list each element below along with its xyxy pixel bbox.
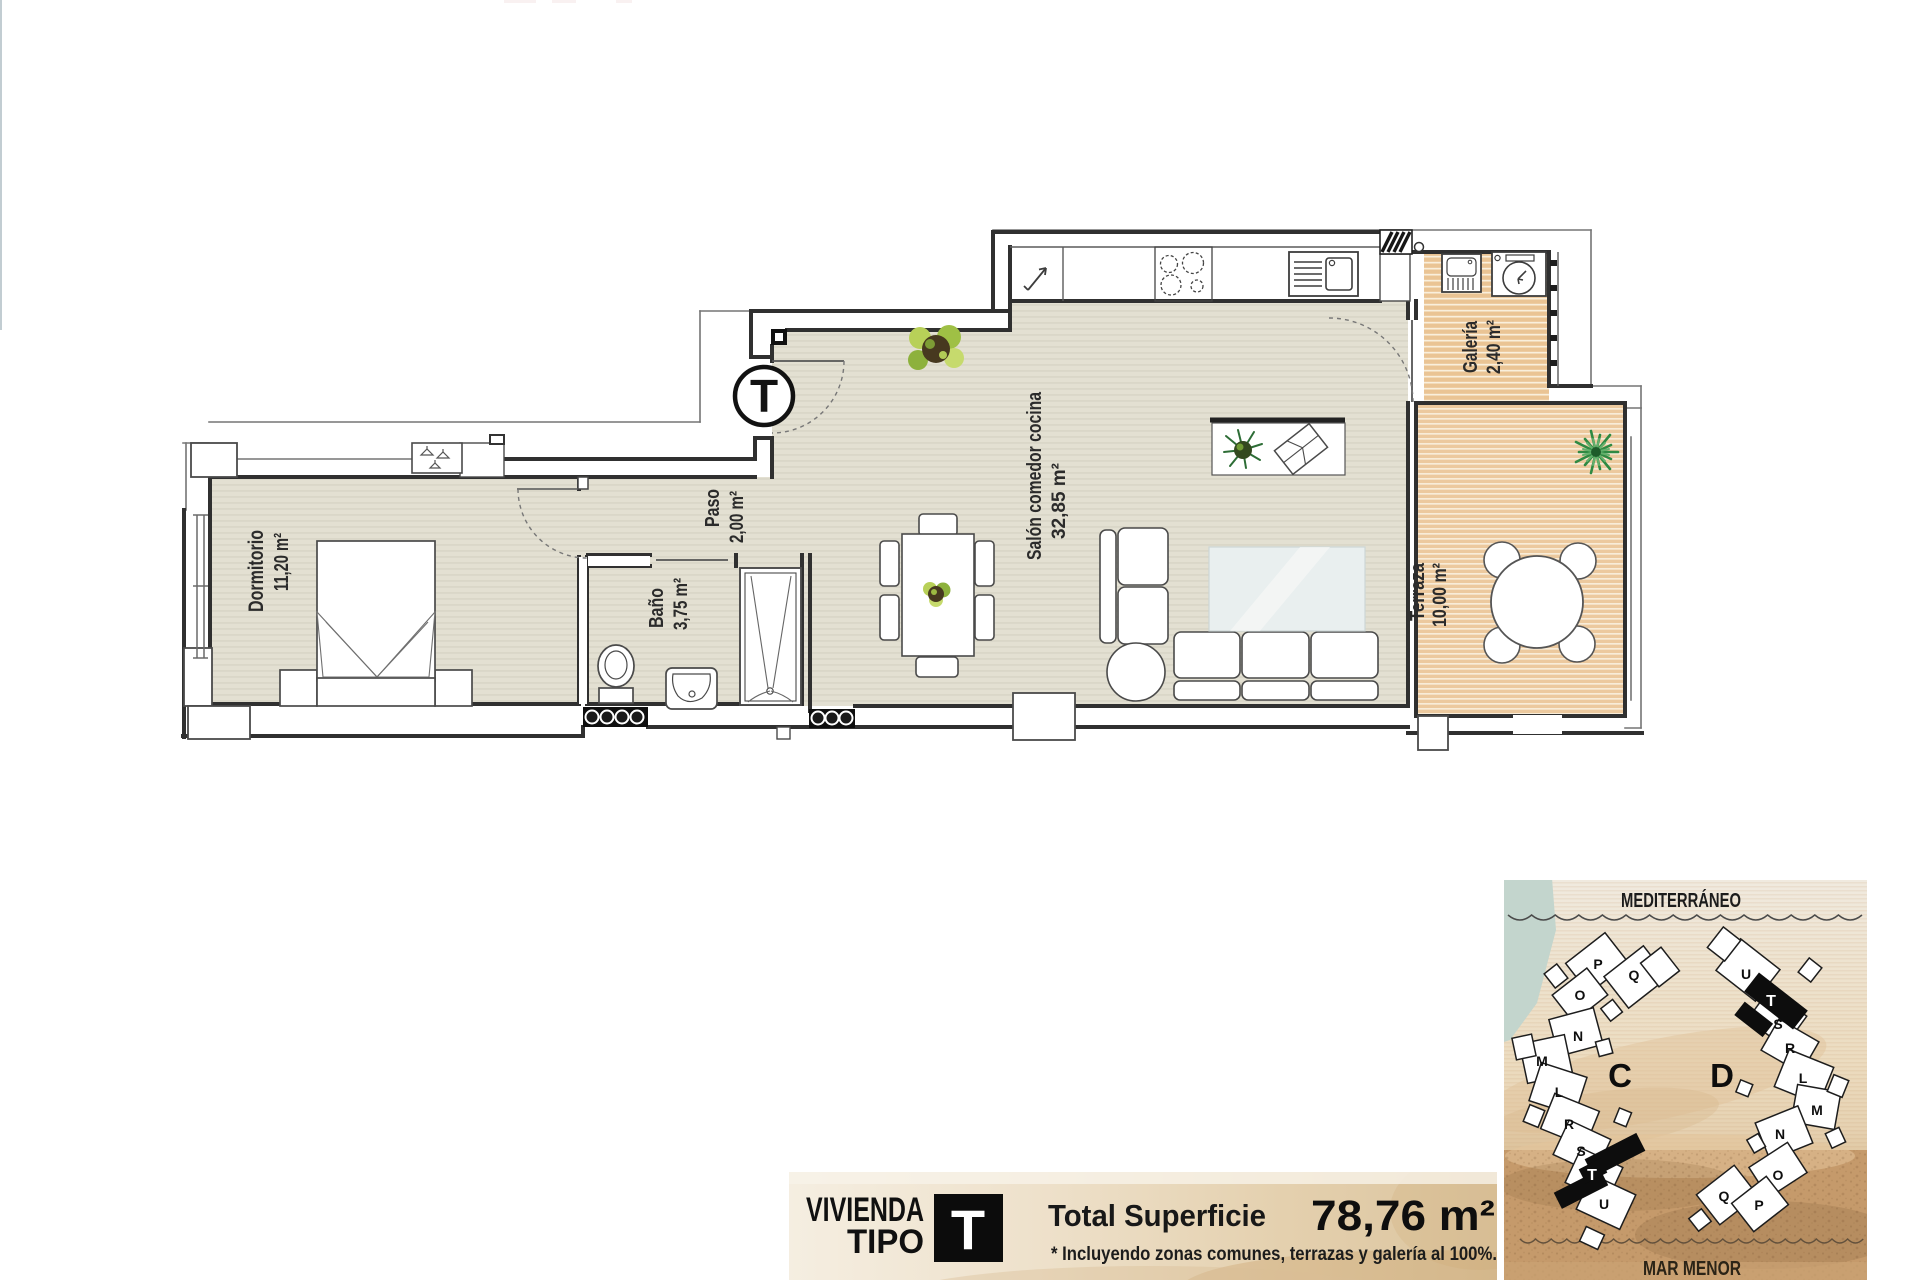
- svg-text:M: M: [1536, 1053, 1548, 1069]
- svg-text:D: D: [1710, 1057, 1734, 1094]
- svg-text:11,20 m²: 11,20 m²: [271, 533, 293, 591]
- svg-text:Galería: Galería: [1460, 320, 1482, 373]
- svg-text:L: L: [1799, 1070, 1808, 1086]
- svg-text:O: O: [1575, 987, 1586, 1003]
- svg-text:S: S: [1576, 1143, 1585, 1159]
- svg-text:T: T: [750, 370, 778, 422]
- svg-text:Q: Q: [1719, 1188, 1730, 1204]
- svg-text:N: N: [1573, 1028, 1583, 1044]
- svg-text:2,40 m²: 2,40 m²: [1484, 320, 1505, 374]
- svg-text:TIPO: TIPO: [847, 1223, 924, 1261]
- svg-text:M: M: [1811, 1102, 1823, 1118]
- svg-text:Salón comedor cocina: Salón comedor cocina: [1024, 391, 1046, 560]
- svg-text:L: L: [1555, 1084, 1564, 1100]
- svg-text:Total Superficie: Total Superficie: [1048, 1198, 1266, 1233]
- svg-text:U: U: [1741, 966, 1751, 982]
- svg-text:T: T: [951, 1198, 985, 1261]
- svg-text:T: T: [1766, 993, 1776, 1010]
- svg-text:P: P: [1593, 956, 1602, 972]
- svg-text:Baño: Baño: [646, 588, 668, 628]
- svg-text:Q: Q: [1629, 967, 1640, 983]
- svg-text:C: C: [1608, 1057, 1632, 1094]
- svg-text:N: N: [1775, 1126, 1785, 1142]
- svg-text:Dormitorio: Dormitorio: [245, 530, 268, 612]
- svg-text:MAR MENOR: MAR MENOR: [1643, 1258, 1741, 1280]
- svg-text:Paso: Paso: [702, 489, 724, 527]
- svg-text:* Incluyendo zonas comunes, te: * Incluyendo zonas comunes, terrazas y g…: [1051, 1244, 1497, 1265]
- svg-text:10,00 m²: 10,00 m²: [1430, 563, 1451, 627]
- svg-text:78,76 m²: 78,76 m²: [1311, 1192, 1495, 1240]
- svg-text:32,85 m²: 32,85 m²: [1049, 463, 1070, 539]
- svg-text:MEDITERRÁNEO: MEDITERRÁNEO: [1621, 889, 1741, 912]
- svg-text:Terraza: Terraza: [1407, 562, 1429, 621]
- svg-text:3,75 m²: 3,75 m²: [671, 578, 692, 630]
- svg-text:2,00 m²: 2,00 m²: [727, 491, 748, 543]
- svg-text:R: R: [1564, 1116, 1574, 1132]
- svg-text:R: R: [1785, 1040, 1795, 1056]
- svg-text:T: T: [1587, 1167, 1597, 1184]
- svg-text:S: S: [1773, 1016, 1782, 1032]
- svg-text:P: P: [1754, 1197, 1763, 1213]
- svg-text:O: O: [1773, 1167, 1784, 1183]
- svg-text:U: U: [1599, 1196, 1609, 1212]
